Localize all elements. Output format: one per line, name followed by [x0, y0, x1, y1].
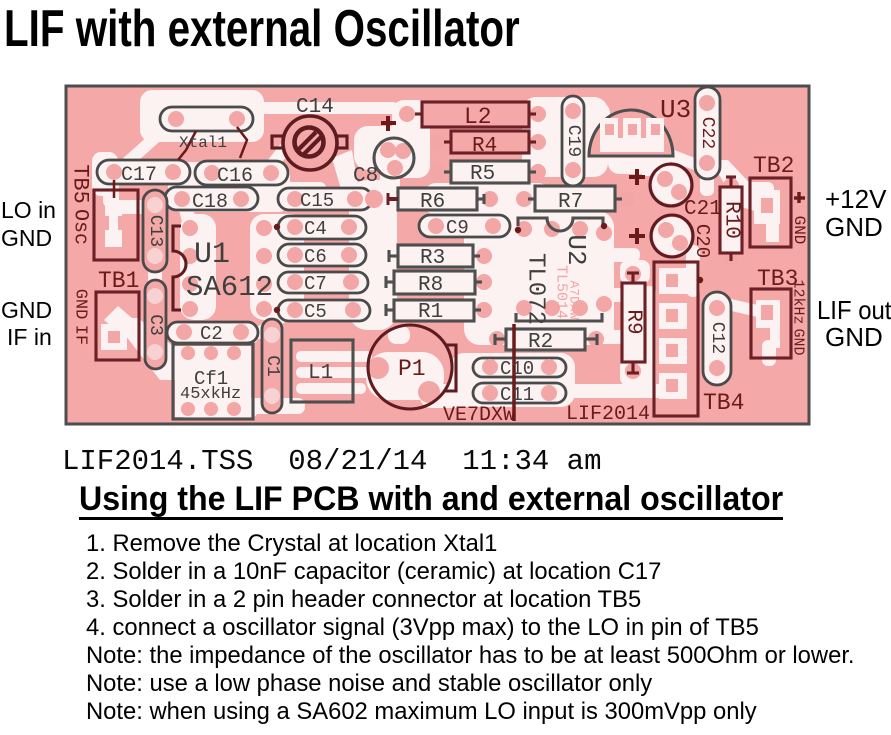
svg-text:TB4: TB4 [703, 390, 744, 416]
svg-text:C10: C10 [500, 358, 534, 380]
svg-text:C8: C8 [353, 165, 378, 188]
svg-text:R10: R10 [720, 201, 743, 239]
svg-text:Osc: Osc [69, 209, 92, 245]
svg-text:GND: GND [71, 289, 90, 320]
svg-text:IF: IF [71, 325, 90, 345]
svg-text:P1: P1 [398, 356, 426, 382]
svg-text:C5: C5 [304, 301, 327, 323]
svg-text:C15: C15 [300, 190, 334, 212]
svg-text:C16: C16 [217, 165, 253, 188]
svg-text:L2: L2 [464, 104, 492, 130]
svg-text:R2: R2 [528, 331, 553, 354]
svg-text:C3: C3 [145, 314, 165, 336]
svg-text:45xkHz: 45xkHz [180, 385, 241, 404]
svg-text:C6: C6 [304, 246, 327, 268]
svg-text:R3: R3 [420, 247, 445, 270]
svg-text:C17: C17 [121, 164, 157, 187]
svg-text:SA612: SA612 [186, 271, 273, 304]
svg-text:A7DXW: A7DXW [567, 280, 582, 319]
svg-text:LIF2014: LIF2014 [566, 403, 650, 426]
svg-text:C2: C2 [200, 323, 223, 345]
svg-text:C22: C22 [697, 117, 717, 149]
svg-text:C14: C14 [296, 96, 334, 119]
svg-text:C4: C4 [304, 218, 327, 240]
svg-text:TL072: TL072 [522, 253, 549, 325]
svg-text:C21: C21 [684, 198, 722, 221]
svg-text:GND: GND [790, 328, 807, 355]
svg-text:TB1: TB1 [98, 268, 139, 294]
svg-text:Xtal1: Xtal1 [179, 134, 227, 152]
svg-text:R5: R5 [470, 163, 495, 186]
svg-text:R1: R1 [418, 301, 443, 324]
svg-text:R9: R9 [622, 309, 645, 334]
svg-text:C9: C9 [446, 217, 469, 239]
svg-text:C13: C13 [145, 215, 165, 247]
svg-text:R8: R8 [418, 274, 443, 297]
svg-text:C19: C19 [563, 125, 583, 157]
svg-text:R6: R6 [420, 191, 445, 214]
svg-text:U2: U2 [561, 234, 591, 265]
svg-text:12kHz: 12kHz [790, 279, 807, 324]
svg-text:C20: C20 [691, 224, 713, 258]
svg-text:C1: C1 [262, 355, 282, 377]
svg-text:TB2: TB2 [753, 153, 794, 179]
svg-text:R7: R7 [558, 191, 583, 214]
svg-text:L1: L1 [308, 362, 333, 385]
svg-text:R4: R4 [472, 135, 497, 158]
svg-text:C12: C12 [707, 322, 727, 354]
svg-text:TB5: TB5 [68, 164, 93, 204]
svg-text:VE7DXW: VE7DXW [443, 404, 515, 427]
svg-text:U3: U3 [660, 95, 691, 125]
svg-text:GND: GND [790, 216, 808, 245]
svg-text:C7: C7 [304, 273, 327, 295]
svg-text:C18: C18 [192, 191, 228, 214]
svg-text:C11: C11 [500, 384, 534, 406]
svg-text:U1: U1 [194, 238, 230, 272]
